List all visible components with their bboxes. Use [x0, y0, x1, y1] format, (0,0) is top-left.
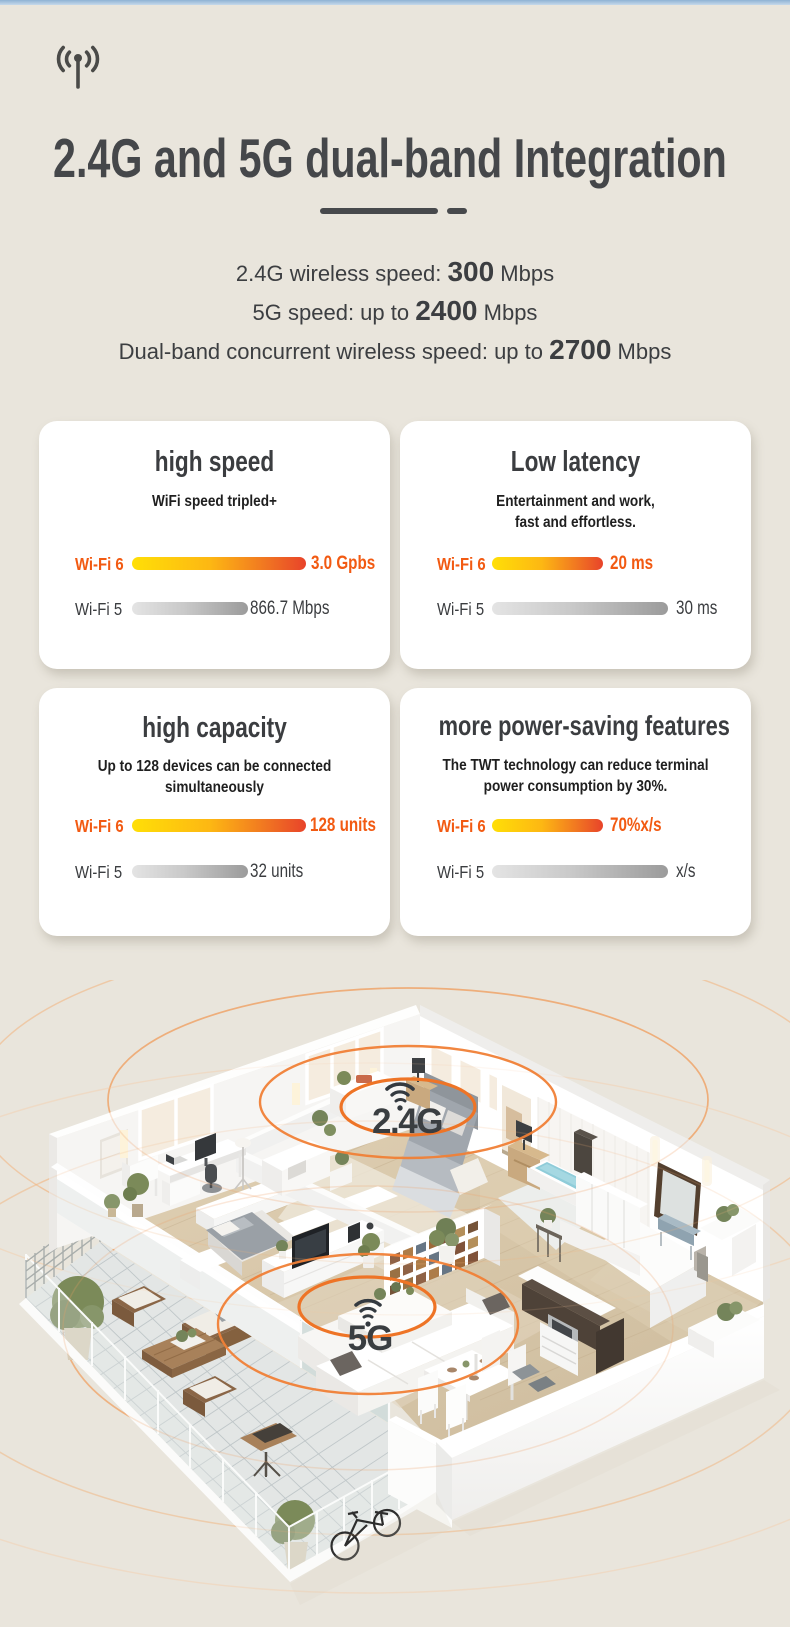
svg-text:5G: 5G — [348, 1319, 393, 1358]
svg-text:2.4G: 2.4G — [372, 1102, 442, 1141]
